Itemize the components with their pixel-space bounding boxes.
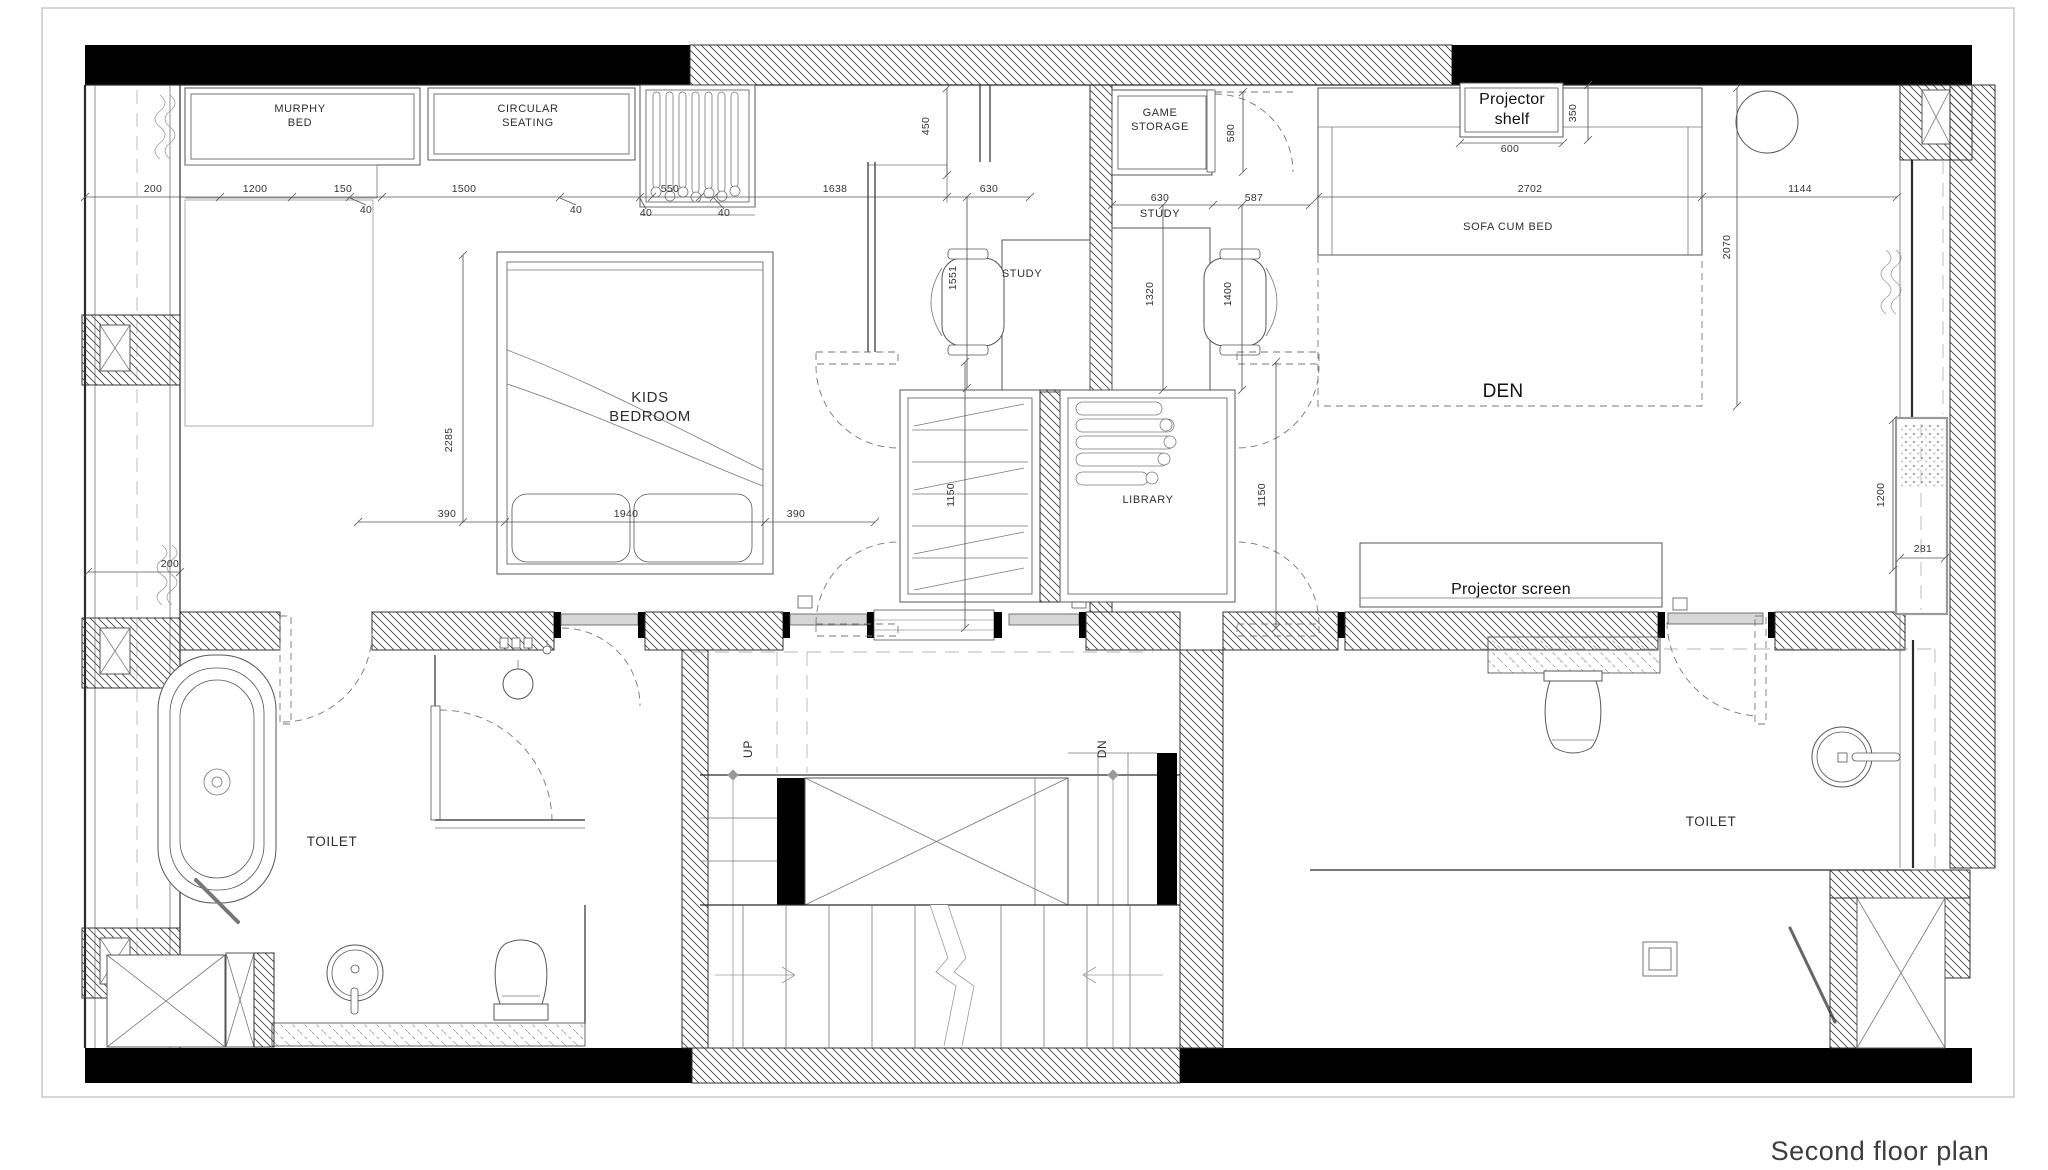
dimensions-1: 1200 <box>243 183 268 195</box>
dimensions-6: 550 <box>661 183 679 195</box>
shower-area <box>1643 870 1970 1048</box>
left-wall-columns <box>82 315 180 998</box>
dimensions-22: 1400 <box>1222 282 1234 307</box>
dimensions-19: 2070 <box>1721 235 1733 260</box>
plants-stipple <box>1900 424 1943 488</box>
break-mask <box>930 905 974 1046</box>
dimensions-3: 1500 <box>452 183 477 195</box>
toilet-right-room <box>1310 616 1970 1048</box>
dimensions-14: 1144 <box>1788 183 1812 195</box>
dimensions-15: 600 <box>1501 143 1519 155</box>
label-study-right: STUDY <box>1140 208 1180 220</box>
label-circular-seating: CIRCULARSEATING <box>497 103 558 129</box>
wall-top-hatched <box>690 45 1452 85</box>
dimensions-16: 450 <box>920 117 932 135</box>
vanity-counter <box>272 1023 585 1046</box>
stool <box>1736 91 1798 153</box>
newel-left <box>777 778 805 905</box>
dimensions-12: 587 <box>1245 192 1263 204</box>
floor-plan-svg: MURPHYBEDCIRCULARSEATINGGAMESTORAGESTUDY… <box>0 0 2048 1170</box>
dimensions-30: 1200 <box>1875 483 1887 508</box>
toilet-left-entry-door <box>280 616 372 724</box>
dimensions-24: 1150 <box>1256 483 1268 507</box>
dimensions-5: 40 <box>570 204 582 216</box>
dimensions-2: 150 <box>334 183 352 195</box>
dimensions-25: 2285 <box>443 428 455 453</box>
dimensions-8: 40 <box>718 207 730 219</box>
dimensions-9: 1638 <box>823 183 848 195</box>
study-right-desk <box>1112 228 1277 390</box>
wall-top-left-black <box>85 45 690 85</box>
label-library: LIBRARY <box>1122 494 1173 506</box>
central-closets <box>816 352 1319 636</box>
dimensions-27: 1940 <box>614 508 639 520</box>
wc-left <box>494 940 548 1020</box>
dimensions-11: 630 <box>1151 192 1169 204</box>
pillow-left <box>512 494 630 562</box>
toilet-right-entry-door <box>1667 616 1766 724</box>
dimensions-28: 390 <box>787 508 805 520</box>
dimensions-10: 630 <box>980 183 998 195</box>
dimensions-18: 350 <box>1567 104 1579 122</box>
dimensions-13: 2702 <box>1518 183 1543 195</box>
drawing-title: Second floor plan <box>1771 1136 1990 1166</box>
dimensions-31: 281 <box>1914 543 1932 555</box>
stair-treads <box>743 905 1130 1048</box>
laundry-box <box>107 953 274 1047</box>
vanity-right <box>1488 637 1660 673</box>
study-right-chair <box>1204 249 1277 355</box>
label-study-left: STUDY <box>1002 268 1042 280</box>
basin-right <box>1812 727 1900 787</box>
label-stair-dn: DN <box>1095 740 1109 759</box>
label-den: DEN <box>1483 381 1524 402</box>
planter-niche <box>1896 418 1947 614</box>
wall-top-right-black <box>1452 45 1972 85</box>
hall-door-swing <box>562 628 640 706</box>
newel-right <box>1157 753 1177 905</box>
dimensions-29: 200 <box>161 558 179 570</box>
dimensions-4: 40 <box>360 204 372 216</box>
closet-divider-wall <box>1040 390 1060 602</box>
bathtub <box>158 655 276 922</box>
basin-left <box>327 945 383 1014</box>
label-projector-screen: Projector screen <box>1451 581 1571 598</box>
study-left-desk <box>931 240 1090 392</box>
staircase <box>692 652 1180 1048</box>
dimensions-0: 200 <box>144 183 162 195</box>
floor-plan-sheet: MURPHYBEDCIRCULARSEATINGGAMESTORAGESTUDY… <box>0 0 2048 1170</box>
dimensions-20: 1551 <box>947 266 959 291</box>
stair-void <box>805 778 1068 905</box>
dimensions-7: 40 <box>640 207 652 219</box>
dimensions-17: 580 <box>1225 124 1237 142</box>
dimensions-21: 1320 <box>1144 282 1156 307</box>
study-left-chair <box>931 249 1004 355</box>
label-stair-up: UP <box>741 740 755 758</box>
toilet-left-room <box>107 616 640 1047</box>
slatted-unit <box>640 85 755 215</box>
murphy-bed-cabinet <box>185 88 420 426</box>
shower-glass <box>1790 928 1835 1022</box>
label-toilet-left: TOILET <box>307 834 358 849</box>
round-mirror <box>503 660 533 700</box>
door-leaf <box>1207 90 1215 172</box>
dimensions-26: 390 <box>438 508 456 520</box>
wc-right <box>1544 671 1602 753</box>
closet-doors-right <box>1237 352 1319 636</box>
pillow-right <box>634 494 752 562</box>
dimensions-23: 1150 <box>945 483 957 507</box>
closet-doors-left <box>816 352 898 636</box>
label-sofa-cum-bed: SOFA CUM BED <box>1463 221 1553 233</box>
den-area <box>1318 83 1798 607</box>
label-toilet-right: TOILET <box>1686 814 1737 829</box>
